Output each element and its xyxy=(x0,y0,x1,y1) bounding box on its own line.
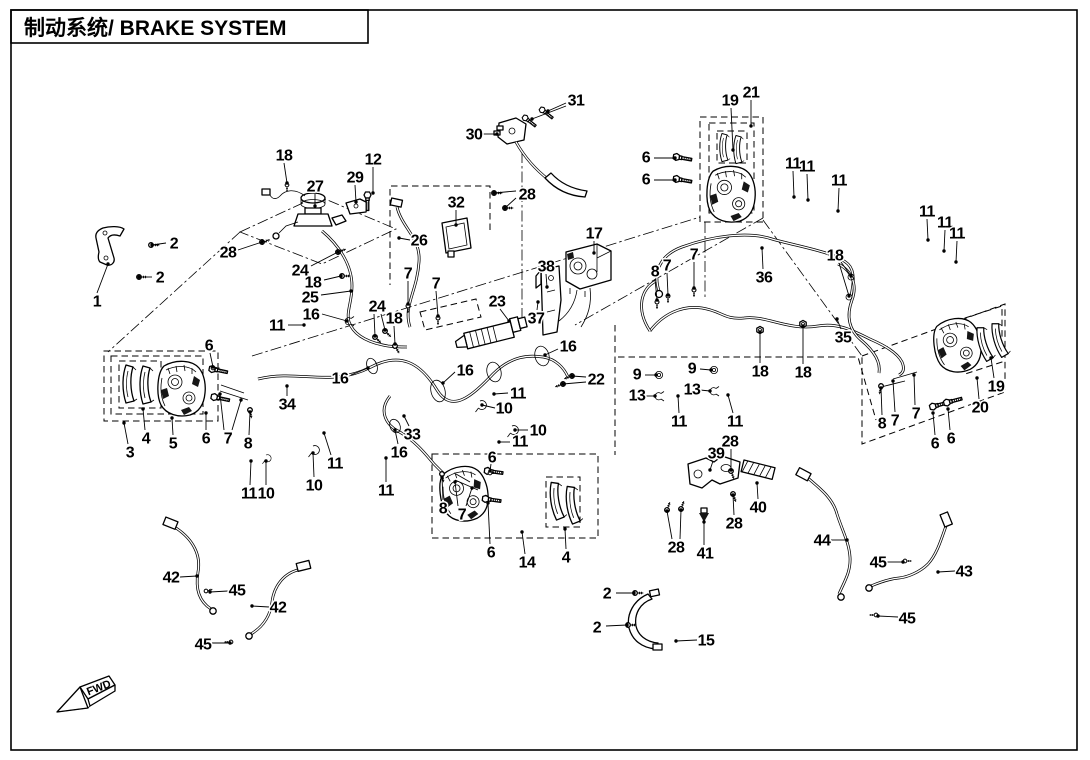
bolt-41 xyxy=(699,508,709,522)
callout-7: 7 xyxy=(690,247,699,264)
leader-dot xyxy=(760,246,763,249)
leader-dot xyxy=(653,394,656,397)
abs-unit-17 xyxy=(566,244,611,297)
leader-line xyxy=(565,529,566,549)
wheel-speed-sensor-43 xyxy=(866,512,953,591)
leader-line xyxy=(249,412,250,435)
spring-40 xyxy=(741,460,775,479)
leader-dot xyxy=(891,379,894,382)
leader-dot xyxy=(942,249,945,252)
leader-line xyxy=(250,461,251,485)
leader-line xyxy=(394,326,395,344)
leader-dot xyxy=(563,527,566,530)
callout-11: 11 xyxy=(327,456,344,473)
leader-dot xyxy=(195,574,198,577)
callout-9: 9 xyxy=(633,367,642,384)
leader-dot xyxy=(954,260,957,263)
leader-dot xyxy=(731,148,734,151)
rear-caliper-right-20 xyxy=(930,315,985,376)
callout-8: 8 xyxy=(244,436,253,453)
leader-dot xyxy=(655,298,658,301)
callout-11: 11 xyxy=(512,434,529,451)
leader-dot xyxy=(208,590,211,593)
leader-dot xyxy=(561,382,564,385)
leader-dot xyxy=(801,324,804,327)
leader-line xyxy=(807,174,808,200)
callout-33: 33 xyxy=(404,427,421,444)
brake-system-exploded-diagram: 制动系统/ BRAKE SYSTEM xyxy=(0,0,1090,760)
leader-line xyxy=(914,375,915,405)
callout-28: 28 xyxy=(722,434,739,451)
leader-dot xyxy=(513,428,516,431)
callout-7: 7 xyxy=(663,258,672,275)
leader-line xyxy=(232,400,241,430)
brake-pads-left-4 xyxy=(123,365,154,404)
callout-25: 25 xyxy=(302,290,319,307)
callout-16: 16 xyxy=(332,371,349,388)
callout-28: 28 xyxy=(668,540,685,557)
leader-dot xyxy=(311,451,314,454)
brake-pads-top-21 xyxy=(720,133,744,163)
callout-36: 36 xyxy=(756,270,773,287)
brake-hose-26 xyxy=(390,198,419,327)
callout-10: 10 xyxy=(258,486,275,503)
callout-6: 6 xyxy=(931,436,940,453)
leader-line xyxy=(180,576,197,577)
callout-7: 7 xyxy=(432,276,441,293)
callout-11: 11 xyxy=(831,173,848,190)
leader-line xyxy=(443,372,455,383)
leader-dot xyxy=(441,381,444,384)
callout-7: 7 xyxy=(458,507,467,524)
callout-27: 27 xyxy=(307,179,324,196)
rear-brake-pipe-35 xyxy=(641,281,903,375)
leader-dot xyxy=(673,178,676,181)
leader-dot xyxy=(503,206,506,209)
leader-line xyxy=(322,314,347,321)
leader-line xyxy=(355,185,356,202)
leader-dot xyxy=(665,509,668,512)
leader-dot xyxy=(758,330,761,333)
leader-line xyxy=(210,591,228,592)
leader-line xyxy=(977,378,979,399)
leader-dot xyxy=(847,294,850,297)
leader-line xyxy=(482,405,495,408)
leader-dot xyxy=(570,374,573,377)
callout-7: 7 xyxy=(912,406,921,423)
leader-line xyxy=(944,230,945,251)
leader-dot xyxy=(218,392,221,395)
leader-line xyxy=(324,433,331,455)
callout-20: 20 xyxy=(972,400,989,417)
leader-dot xyxy=(926,238,929,241)
leader-dot xyxy=(975,376,978,379)
abs-outlet-pipes xyxy=(559,288,591,327)
callout-8: 8 xyxy=(439,501,448,518)
leader-dot xyxy=(122,421,125,424)
callout-22: 22 xyxy=(588,372,605,389)
leader-dot xyxy=(679,508,682,511)
leader-line xyxy=(252,606,269,607)
leader-dot xyxy=(239,398,242,401)
leader-dot xyxy=(726,393,729,396)
leader-dot xyxy=(520,530,523,533)
leader-dot xyxy=(936,570,939,573)
leader-dot xyxy=(709,368,712,371)
leader-line xyxy=(956,241,957,262)
leader-dot xyxy=(879,386,882,389)
leader-line xyxy=(731,108,733,150)
leader-line xyxy=(733,495,734,515)
callout-2: 2 xyxy=(593,620,602,637)
callout-4: 4 xyxy=(142,431,151,448)
leader-dot xyxy=(285,181,288,184)
leader-dot xyxy=(486,501,489,504)
leader-dot xyxy=(260,240,263,243)
leader-dot xyxy=(729,468,732,471)
leader-dot xyxy=(339,274,342,277)
callout-30: 30 xyxy=(466,127,483,144)
leader-line xyxy=(938,571,955,572)
leader-dot xyxy=(488,469,491,472)
callout-6: 6 xyxy=(642,172,651,189)
leader-dot xyxy=(345,319,348,322)
rear-caliper-top-19 xyxy=(707,166,755,222)
callout-28: 28 xyxy=(519,187,536,204)
leader-dot xyxy=(708,389,711,392)
leader-dot xyxy=(440,475,443,478)
leader-dot xyxy=(497,440,500,443)
leader-line xyxy=(762,248,763,269)
leader-dot xyxy=(264,459,267,462)
grommets-16 xyxy=(345,317,551,435)
leader-dot xyxy=(876,614,879,617)
leader-dot xyxy=(492,392,495,395)
callout-44: 44 xyxy=(814,533,831,550)
leader-dot xyxy=(845,538,848,541)
leader-line xyxy=(728,395,733,413)
leader-line xyxy=(606,625,627,626)
leader-line xyxy=(757,483,758,499)
leader-dot xyxy=(835,317,838,320)
leader-dot xyxy=(946,407,949,410)
leader-line xyxy=(97,264,108,293)
callout-2: 2 xyxy=(156,270,165,287)
rings-9 xyxy=(655,366,717,378)
callout-7: 7 xyxy=(891,413,900,430)
callout-16: 16 xyxy=(560,339,577,356)
callout-12: 12 xyxy=(365,152,382,169)
leader-dot xyxy=(792,195,795,198)
callout-16: 16 xyxy=(303,307,320,324)
leader-line xyxy=(494,191,516,193)
leader-dot xyxy=(989,356,992,359)
leader-dot xyxy=(495,132,498,135)
leader-dot xyxy=(248,410,251,413)
callout-11: 11 xyxy=(727,414,744,431)
callout-11: 11 xyxy=(378,483,395,500)
callout-8: 8 xyxy=(651,264,660,281)
callout-6: 6 xyxy=(488,450,497,467)
callout-40: 40 xyxy=(750,500,767,517)
leader-line xyxy=(680,510,681,539)
leader-dot xyxy=(654,373,657,376)
callout-9: 9 xyxy=(688,361,697,378)
callout-6: 6 xyxy=(947,431,956,448)
leader-dot xyxy=(674,639,677,642)
callout-17: 17 xyxy=(586,226,603,243)
leader-dot xyxy=(470,486,473,489)
leader-dot xyxy=(371,191,374,194)
leader-dot xyxy=(249,459,252,462)
master-cylinder-reservoir-27 xyxy=(262,189,346,239)
callout-10: 10 xyxy=(306,478,323,495)
leader-dot xyxy=(393,428,396,431)
leader-dot xyxy=(492,191,495,194)
callout-14: 14 xyxy=(519,555,536,572)
leader-dot xyxy=(530,117,533,120)
leader-dot xyxy=(106,262,109,265)
callout-16: 16 xyxy=(391,445,408,462)
leader-line xyxy=(351,368,368,375)
callout-35: 35 xyxy=(835,330,852,347)
leader-lines xyxy=(97,100,994,645)
leader-dot xyxy=(383,328,386,331)
leader-line xyxy=(321,291,351,295)
callout-11: 11 xyxy=(241,486,258,503)
leader-line xyxy=(678,396,679,413)
leader-dot xyxy=(150,243,153,246)
callout-34: 34 xyxy=(279,397,296,414)
callout-11: 11 xyxy=(510,386,527,403)
callout-45: 45 xyxy=(229,583,246,600)
callout-11: 11 xyxy=(799,159,816,176)
callout-19: 19 xyxy=(988,379,1005,396)
callout-26: 26 xyxy=(411,233,428,250)
callout-10: 10 xyxy=(496,401,513,418)
brake-pads-bottom-4 xyxy=(548,481,583,525)
callout-45: 45 xyxy=(195,637,212,654)
leader-dot xyxy=(749,124,752,127)
callout-3: 3 xyxy=(126,445,135,462)
leader-dot xyxy=(673,156,676,159)
rear-master-cylinder-23 xyxy=(453,315,528,351)
callout-43: 43 xyxy=(956,564,973,581)
callout-7: 7 xyxy=(224,431,233,448)
callout-7: 7 xyxy=(404,266,413,283)
leader-dot xyxy=(731,493,734,496)
leader-dot xyxy=(912,373,915,376)
leader-dot xyxy=(543,353,546,356)
rear-brake-pipe-36 xyxy=(656,235,854,297)
leader-dot xyxy=(393,342,396,345)
leader-line xyxy=(172,418,173,435)
leader-dot xyxy=(625,623,628,626)
callout-6: 6 xyxy=(487,545,496,562)
leader-line xyxy=(324,276,341,280)
leader-dot xyxy=(453,480,456,483)
leader-dot xyxy=(436,314,439,317)
heat-guard-15 xyxy=(628,589,662,650)
leader-dot xyxy=(228,641,231,644)
leader-dot xyxy=(170,416,173,419)
leader-line xyxy=(793,171,794,197)
callout-29: 29 xyxy=(347,170,364,187)
leader-line xyxy=(838,188,839,211)
leader-dot xyxy=(141,407,144,410)
leader-dot xyxy=(250,604,253,607)
callout-4: 4 xyxy=(562,550,571,567)
callout-18: 18 xyxy=(827,248,844,265)
leader-line xyxy=(933,413,935,435)
leader-dot xyxy=(454,223,457,226)
leader-line xyxy=(284,163,287,183)
callout-labels: 1222818272912263228303119216611111111111… xyxy=(93,85,1005,654)
callout-2: 2 xyxy=(170,236,179,253)
leader-line xyxy=(238,242,262,250)
callout-15: 15 xyxy=(698,633,715,650)
leader-dot xyxy=(931,411,934,414)
leader-dot xyxy=(204,411,207,414)
callout-16: 16 xyxy=(457,363,474,380)
callout-21: 21 xyxy=(743,85,760,102)
leader-line xyxy=(494,393,508,394)
leader-dot xyxy=(137,275,140,278)
leader-dot xyxy=(402,414,405,417)
leader-line xyxy=(381,314,385,330)
callout-6: 6 xyxy=(205,338,214,355)
leader-dot xyxy=(366,366,369,369)
callout-31: 31 xyxy=(568,93,585,110)
leader-line xyxy=(522,532,525,554)
callout-24: 24 xyxy=(369,299,386,316)
leader-dot xyxy=(406,302,409,305)
leader-line xyxy=(311,252,338,266)
callout-28: 28 xyxy=(726,516,743,533)
callout-18: 18 xyxy=(386,311,403,328)
leader-line xyxy=(667,273,668,295)
callout-6: 6 xyxy=(202,431,211,448)
callout-28: 28 xyxy=(220,245,237,262)
brake-pedal-30 xyxy=(494,118,587,197)
page-title: 制动系统/ BRAKE SYSTEM xyxy=(24,16,287,40)
leader-line xyxy=(505,198,516,208)
leader-dot xyxy=(836,209,839,212)
callout-37: 37 xyxy=(528,311,545,328)
leader-dot xyxy=(692,286,695,289)
leader-line xyxy=(881,388,882,415)
callout-13: 13 xyxy=(629,388,646,405)
callout-11: 11 xyxy=(919,204,936,221)
callout-45: 45 xyxy=(899,611,916,628)
callout-18: 18 xyxy=(276,148,293,165)
callout-41: 41 xyxy=(697,546,714,563)
callout-11: 11 xyxy=(269,318,286,335)
leader-line xyxy=(374,314,375,336)
leader-line xyxy=(676,640,697,641)
leader-dot xyxy=(397,236,400,239)
callout-19: 19 xyxy=(722,93,739,110)
leader-dot xyxy=(849,274,852,277)
leader-line xyxy=(143,409,145,430)
callout-18: 18 xyxy=(795,365,812,382)
leader-line xyxy=(313,453,314,477)
leader-line xyxy=(124,423,128,444)
wheel-speed-sensor-42-left xyxy=(163,517,216,614)
leader-dot xyxy=(806,198,809,201)
leader-dot xyxy=(302,323,305,326)
callout-2: 2 xyxy=(603,586,612,603)
leader-dot xyxy=(354,200,357,203)
callout-6: 6 xyxy=(642,150,651,167)
leader-line xyxy=(210,353,213,367)
leader-dot xyxy=(349,289,352,292)
leader-line xyxy=(500,309,509,321)
callout-11: 11 xyxy=(949,226,966,243)
leader-line xyxy=(991,358,994,378)
front-caliper-left-5 xyxy=(158,361,205,416)
callout-32: 32 xyxy=(448,195,465,212)
leader-dot xyxy=(507,319,510,322)
callout-1: 1 xyxy=(93,294,102,311)
callout-45: 45 xyxy=(870,555,887,572)
callout-11: 11 xyxy=(671,414,688,431)
callout-13: 13 xyxy=(684,382,701,399)
callout-42: 42 xyxy=(270,600,287,617)
bracket-1 xyxy=(96,227,124,266)
leader-line xyxy=(927,219,928,240)
callout-42: 42 xyxy=(163,570,180,587)
leader-dot xyxy=(666,293,669,296)
leader-dot xyxy=(480,403,483,406)
leader-dot xyxy=(545,285,548,288)
fwd-arrow: FWD xyxy=(57,676,115,712)
leader-dot xyxy=(702,520,705,523)
leader-dot xyxy=(211,365,214,368)
leader-dot xyxy=(336,250,339,253)
leader-dot xyxy=(285,384,288,387)
leader-dot xyxy=(536,300,539,303)
leader-dot xyxy=(676,394,679,397)
callout-8: 8 xyxy=(878,416,887,433)
callout-38: 38 xyxy=(538,259,555,276)
callout-23: 23 xyxy=(489,294,506,311)
leader-dot xyxy=(708,468,711,471)
leader-dot xyxy=(322,431,325,434)
callout-10: 10 xyxy=(530,423,547,440)
leader-dot xyxy=(901,560,904,563)
leader-dot xyxy=(313,204,316,207)
callout-18: 18 xyxy=(752,364,769,381)
leader-line xyxy=(878,616,898,617)
leader-line xyxy=(436,291,438,316)
parts-catalog-page: 制动系统/ BRAKE SYSTEM xyxy=(0,0,1090,760)
callout-5: 5 xyxy=(169,436,178,453)
leader-dot xyxy=(632,591,635,594)
leader-dot xyxy=(755,481,758,484)
leader-dot xyxy=(373,334,376,337)
leader-line xyxy=(893,381,895,412)
leader-line xyxy=(667,511,672,539)
leader-dot xyxy=(592,251,595,254)
leader-dot xyxy=(384,456,387,459)
leader-line xyxy=(563,382,586,384)
